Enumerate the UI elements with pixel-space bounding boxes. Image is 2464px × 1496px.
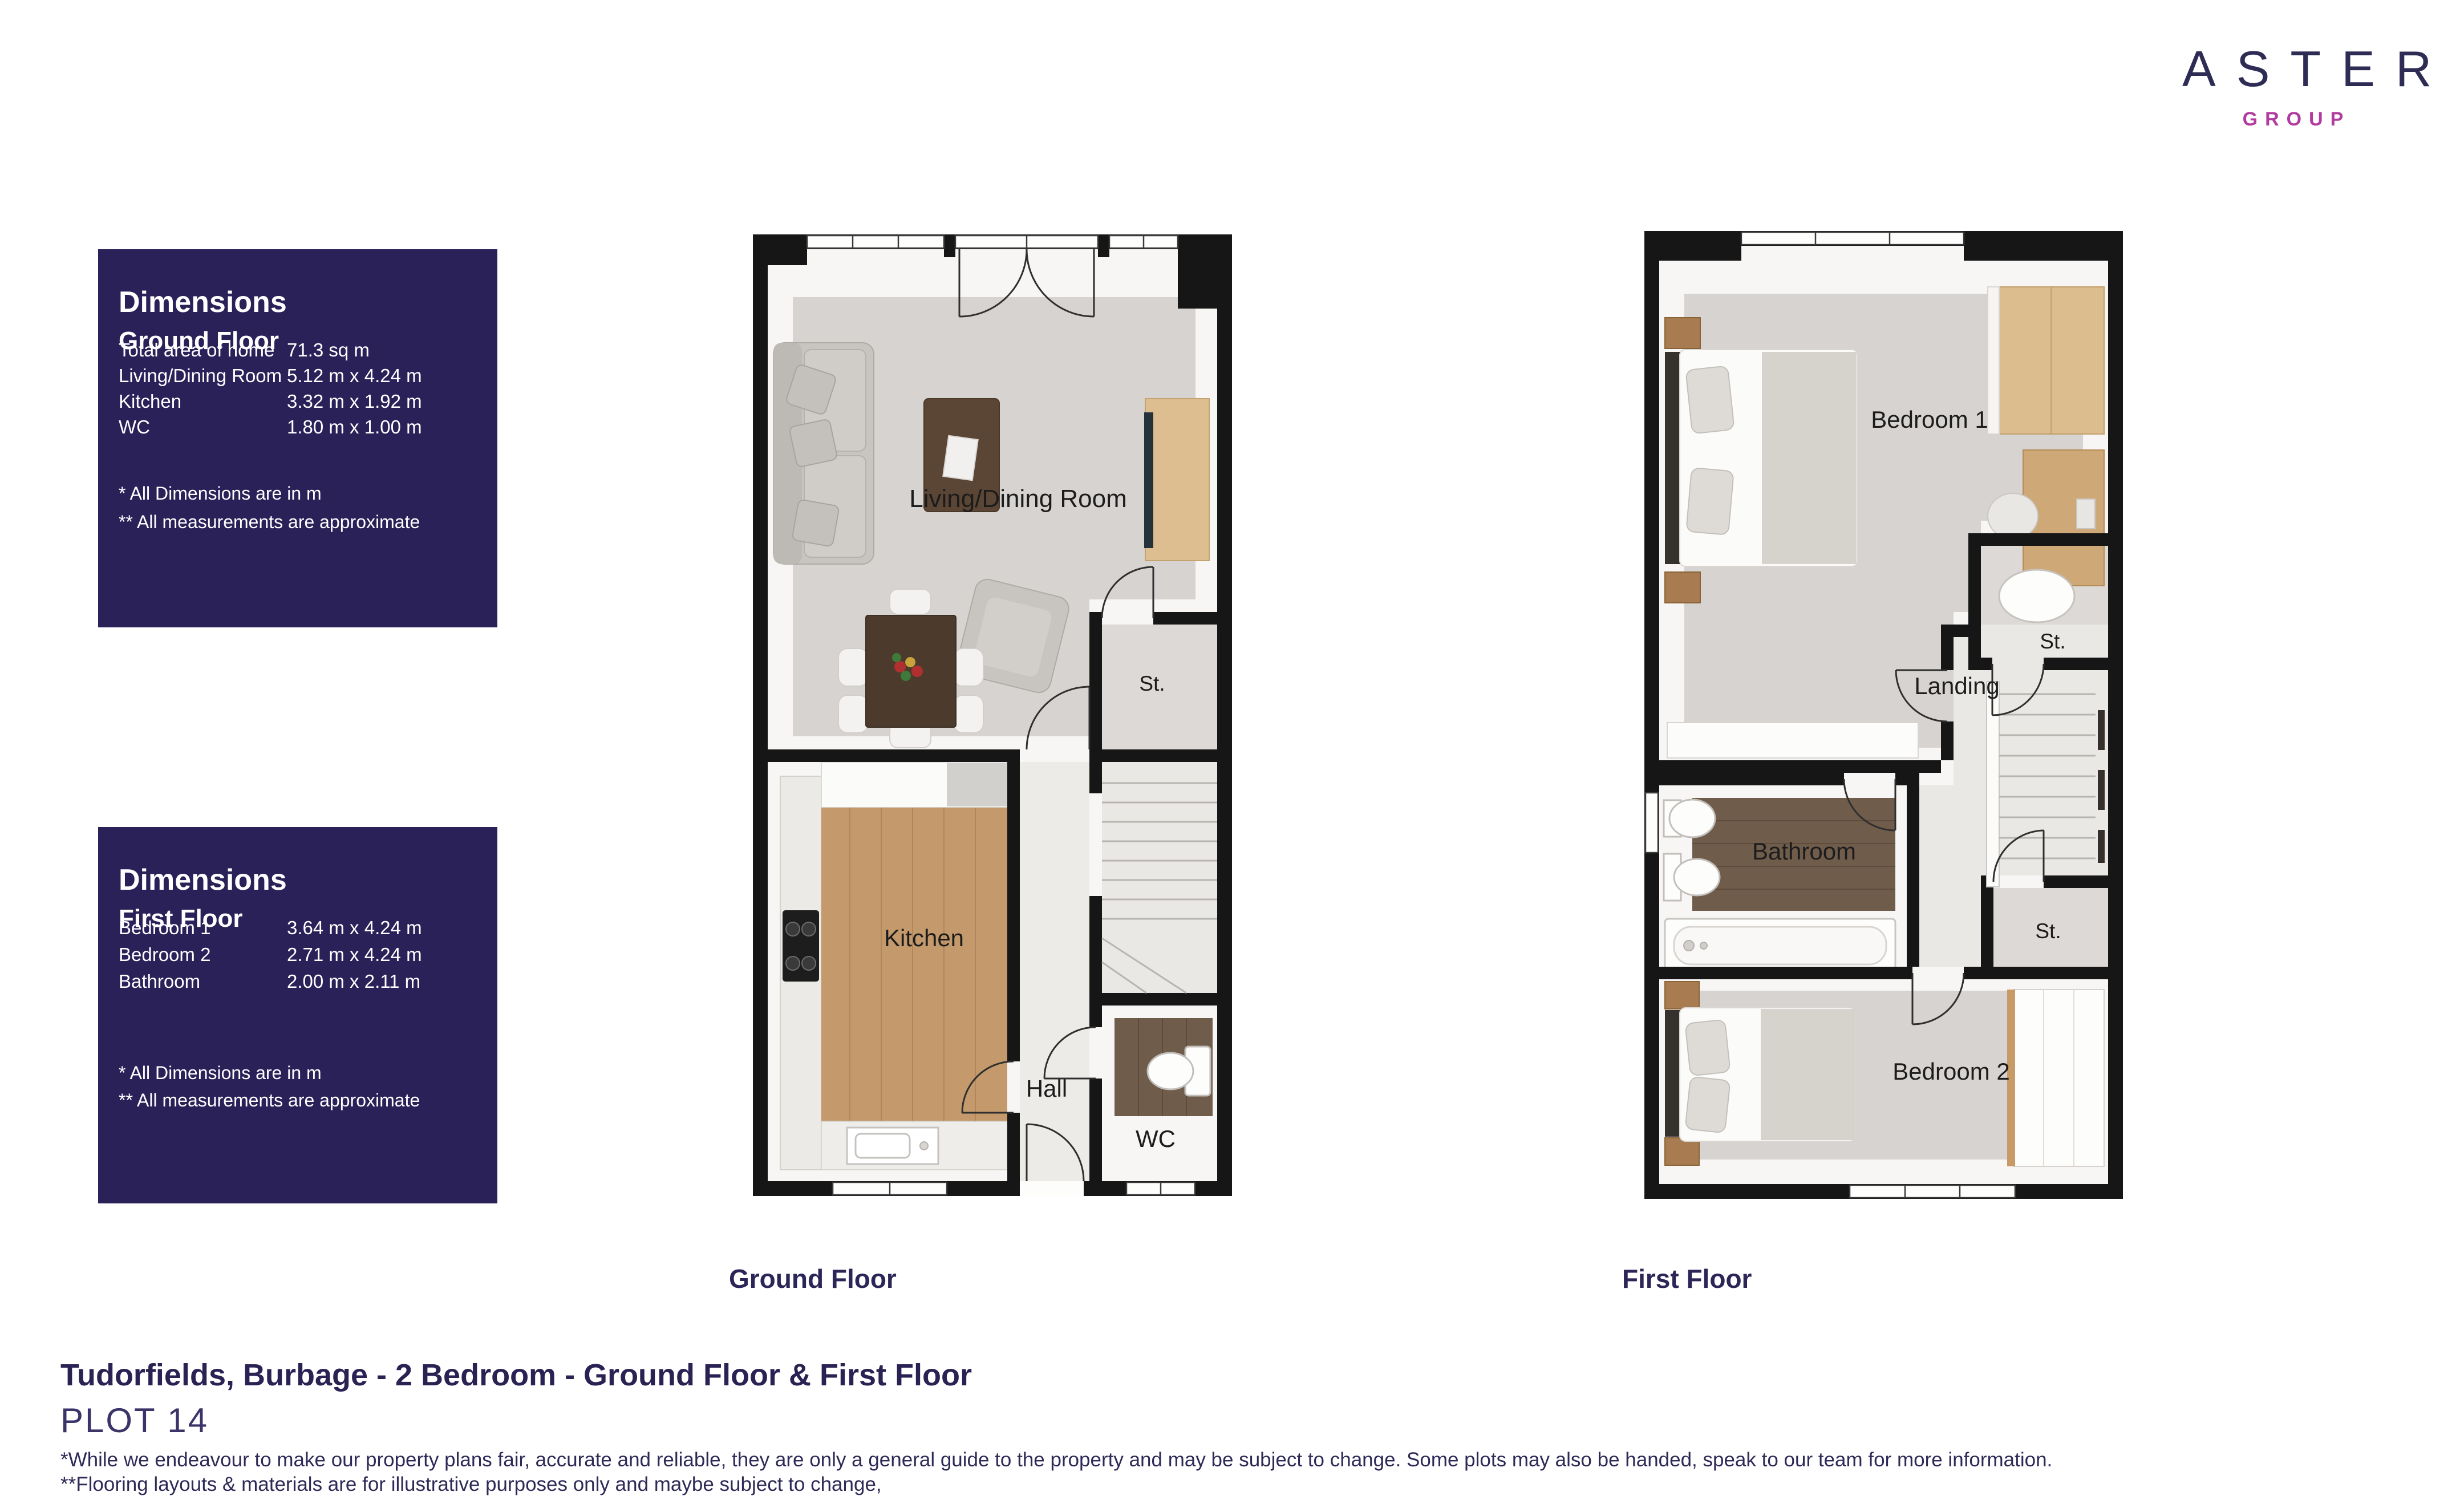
dimension-label: Bathroom [119,971,200,992]
first-floor-caption: First Floor [1622,1263,1752,1294]
room-label-storage: St. [1139,672,1165,695]
landing-corridor-floor [1919,785,1981,967]
room-label-bedroom2: Bedroom 2 [1892,1058,2009,1085]
dimension-row: Bathroom 2.00 m x 2.11 m [119,971,484,995]
dimension-value: 2.00 m x 2.11 m [287,971,420,992]
dimension-value: 3.64 m x 4.24 m [287,917,422,939]
room-label-wc: WC [1136,1125,1176,1152]
dimension-row: Bedroom 2 2.71 m x 4.24 m [119,944,484,968]
dimension-row: Bedroom 1 3.64 m x 4.24 m [119,917,484,941]
panel-footnote: * All Dimensions are in m [119,1063,322,1084]
hall-floor [1020,762,1089,1181]
room-label-storage1: St. [2040,630,2065,653]
picture-frame [2098,830,2105,863]
panel-title: Dimensions [119,863,287,897]
panel-title: Dimensions [119,285,287,319]
bed-1 [1665,318,1858,603]
disclaimer-line-1: *While we endeavour to make our property… [60,1449,2052,1471]
stairs-floor [1102,762,1217,993]
brand-name: ASTER [2162,40,2424,98]
bathroom-fittings [1664,798,1895,972]
wardrobe-1 [1988,287,2104,434]
dimension-label: Bedroom 2 [119,944,210,965]
bed-2 [1665,982,1855,1165]
room-label-kitchen: Kitchen [884,925,964,951]
first-floor-plan: Bedroom 1 St. Landing Bathroom St. Bedro… [1644,231,2123,1199]
kitchen-sink [847,1128,938,1164]
dimension-label: Living/Dining Room [119,365,282,386]
page-title: Tudorfields, Burbage - 2 Bedroom - Groun… [60,1357,972,1393]
nightstand [1665,1138,1699,1165]
dimension-label: Total area of home [119,339,274,360]
water-tank [1999,570,2074,622]
headboard [1665,1010,1680,1137]
dimension-label: Kitchen [119,391,181,412]
room-label-bathroom: Bathroom [1752,838,1856,865]
toilet [1674,859,1720,895]
bedroom1-low-unit [1667,723,1918,758]
dimensions-panel-ground-floor: Dimensions Ground Floor Total area of ho… [98,249,497,627]
dimension-value: 2.71 m x 4.24 m [287,944,422,966]
nightstand [1665,982,1699,1009]
wc-fittings [1115,1018,1213,1116]
room-label-bedroom1: Bedroom 1 [1871,406,1988,433]
plot-number: PLOT 14 [60,1401,209,1440]
wardrobe-2 [2007,990,2104,1166]
duvet [1761,1009,1855,1140]
picture-frame [2098,710,2105,750]
room-label-storage2: St. [2035,919,2061,943]
room-label-landing: Landing [1914,672,1999,699]
dimension-label: WC [119,416,150,437]
ground-floor-caption: Ground Floor [729,1263,897,1294]
panel-footnote: ** All measurements are approximate [119,512,420,533]
tv [1144,412,1153,548]
nightstand [1665,318,1700,348]
dimension-row: Kitchen 3.32 m x 1.92 m [119,391,484,415]
ground-floor-plan: Living/Dining Room St. Kitchen Hall WC [753,234,1232,1196]
dimension-row: Living/Dining Room 5.12 m x 4.24 m [119,365,484,389]
dimensions-panel-first-floor: Dimensions First Floor Bedroom 1 3.64 m … [98,827,497,1203]
brand-logo: ASTER GROUP [2162,40,2424,131]
panel-footnote: ** All measurements are approximate [119,1090,420,1111]
brand-subname: GROUP [2162,108,2424,131]
dimension-label: Bedroom 1 [119,917,210,938]
headboard [1665,352,1680,564]
panel-footnote: * All Dimensions are in m [119,483,322,504]
basin [1669,800,1715,837]
disclaimer-line-2: **Flooring layouts & materials are for i… [60,1473,882,1496]
front-door-opening [1020,1181,1084,1196]
room-label-hall: Hall [1026,1075,1067,1102]
sofa [773,343,874,564]
dimension-row: Total area of home 71.3 sq m [119,339,484,363]
dimension-value: 71.3 sq m [287,339,370,361]
nightstand [1665,572,1700,603]
tv-unit [1144,399,1209,561]
dimension-value: 1.80 m x 1.00 m [287,416,422,438]
dimension-value: 3.32 m x 1.92 m [287,391,422,412]
dimension-value: 5.12 m x 4.24 m [287,365,422,387]
room-label-living-dining: Living/Dining Room [909,485,1127,513]
hob [783,910,819,982]
duvet [1762,352,1857,564]
desk-chair [1988,493,2038,539]
dimension-row: WC 1.80 m x 1.00 m [119,416,484,440]
kitchen-fittings [780,762,1007,1170]
picture-frame [2098,770,2105,810]
